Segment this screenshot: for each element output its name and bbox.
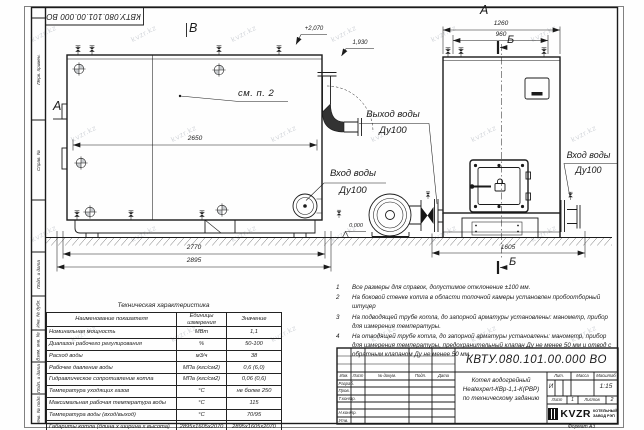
tech-header-unit: Единицы измерения xyxy=(177,313,227,327)
sheet-value: 1 xyxy=(567,398,578,403)
table-row: Температура воды (вход/выход)°С70/95 xyxy=(47,409,282,421)
tech-name: Максимальная рабочая температура воды xyxy=(47,397,177,409)
dim-1260: 1260 xyxy=(474,21,528,28)
company-logo: KVZR КОТЕЛЬНЫЙ ЗАВОД РЭП xyxy=(548,405,617,423)
tech-name: Расход воды xyxy=(47,350,177,362)
strip-label-podp-data-2: Подп. и дата xyxy=(31,362,45,394)
elevation-2070: +2,070 xyxy=(300,26,328,32)
tech-value: 38 xyxy=(227,350,282,362)
tech-table-title: Техническая характеристика xyxy=(46,302,281,312)
title-block-designation: КВТУ.080.101.00.000 ВО xyxy=(457,351,616,369)
tech-name: Температура воды (вход/выход) xyxy=(47,409,177,421)
tech-value: 115 xyxy=(227,397,282,409)
col-list: Лист xyxy=(351,374,365,378)
elevation-zero: 0.000 xyxy=(345,224,367,230)
dim-960: 960 xyxy=(474,32,528,39)
tech-value: 1,1 xyxy=(227,327,282,339)
outlet-water-label: Выход воды xyxy=(357,110,429,120)
col-podp: Подп. xyxy=(409,374,432,378)
company-name-line2: ЗАВОД РЭП xyxy=(593,414,617,419)
tech-name: Рабочее давление воды xyxy=(47,362,177,374)
list-item: 3На подводящей трубе котла, до запорной … xyxy=(336,314,617,332)
strip-label-text: Подп. и дата xyxy=(36,260,41,289)
tech-name: Гидравлическое сопротивление котла xyxy=(47,374,177,386)
company-name: КОТЕЛЬНЫЙ ЗАВОД РЭП xyxy=(593,409,617,418)
mass-label: Масса xyxy=(571,374,594,378)
row-razrab: Разраб. xyxy=(339,382,355,386)
table-row: Диапазон рабочего регулирования%50-100 xyxy=(47,338,282,350)
table-row: Номинальная мощностьМВт1,1 xyxy=(47,327,282,339)
tech-name: Диапазон рабочего регулирования xyxy=(47,338,177,350)
table-row: Температура уходящих газов°Сне более 250 xyxy=(47,386,282,398)
dim-2770: 2770 xyxy=(167,245,221,252)
tech-unit: °С xyxy=(177,397,227,409)
doc-name-line1: Котел водогрейный xyxy=(456,378,546,384)
scale-label: Масштаб xyxy=(594,374,618,378)
tech-value: 0,06 (0,6) xyxy=(227,374,282,386)
tech-value: 70/95 xyxy=(227,409,282,421)
kvzr-logo-icon xyxy=(548,408,558,420)
sheet-label: Лист xyxy=(547,398,567,402)
table-row: Расход водым3/ч38 xyxy=(47,350,282,362)
table-row: Рабочее давление водыМПа (кгс/см2)0,6 (6… xyxy=(47,362,282,374)
tech-unit: МВт xyxy=(177,327,227,339)
tech-unit: °С xyxy=(177,386,227,398)
inlet-water-dn-left: Ду100 xyxy=(318,186,388,196)
tech-value: 2895х1605х2070 xyxy=(227,421,282,430)
strip-label-text: Перв. примен. xyxy=(36,54,41,85)
inlet-water-dn-right: Ду100 xyxy=(559,166,618,175)
note-number: 4 xyxy=(336,333,352,360)
note-number: 3 xyxy=(336,314,352,332)
callout-see-note-2: см. п. 2 xyxy=(238,89,274,99)
table-row: Гидравлическое сопротивление котлаМПа (к… xyxy=(47,374,282,386)
row-nkontr: Н.контр. xyxy=(339,411,357,415)
sheets-value: 2 xyxy=(606,398,618,403)
boiler-door xyxy=(470,160,531,212)
view-label-a-left: А xyxy=(53,100,61,113)
elevation-1930: 1,930 xyxy=(346,40,374,46)
tech-unit: 2895х1605х2070 xyxy=(177,421,227,430)
section-label-b-bottom: Б xyxy=(509,257,516,268)
strip-label-text: Подп. и дата xyxy=(36,364,41,393)
col-data: Дата xyxy=(432,374,455,378)
tech-unit: м3/ч xyxy=(177,350,227,362)
inlet-water-label-right: Вход воды xyxy=(559,151,618,160)
row-tkontr: Т.контр. xyxy=(339,397,356,401)
row-prov: Пров. xyxy=(339,389,350,393)
strip-label-sprav: Справ. № xyxy=(31,120,45,200)
col-docnum: № докум. xyxy=(365,374,409,378)
note-text: На боковой стенке котла в области топочн… xyxy=(352,294,617,312)
strip-label-text: Инв. № дубл. xyxy=(36,299,41,327)
strip-label-inv-podl: Инв. № подл. xyxy=(31,394,45,424)
top-designation: КВТУ.080.101.00.000 ВО xyxy=(45,8,142,24)
tech-unit: МПа (кгс/см2) xyxy=(177,374,227,386)
tech-unit: % xyxy=(177,338,227,350)
doc-name-line3: по техническому заданию xyxy=(456,396,546,402)
tech-name: Температура уходящих газов xyxy=(47,386,177,398)
drawing-sheet: kvzr.kzkvzr.kzkvzr.kzkvzr.kzkvzr.kzkvzr.… xyxy=(0,0,644,430)
scale-value: 1:15 xyxy=(594,384,618,391)
strip-label-inv-dubl: Инв. № дубл. xyxy=(31,296,45,330)
col-izm: Изм. xyxy=(337,374,351,378)
tech-header-value: Значение xyxy=(227,313,282,327)
note-text: На подводящей трубе котла, до запорной а… xyxy=(352,314,617,332)
note-number: 2 xyxy=(336,294,352,312)
dim-2895: 2895 xyxy=(167,258,221,265)
sheets-label: Листов xyxy=(578,398,606,402)
list-item: 1Все размеры для справок, допустимое отк… xyxy=(336,284,617,293)
blower-fan xyxy=(343,194,444,238)
note-number: 1 xyxy=(336,284,352,293)
outlet-water-dn: Ду100 xyxy=(357,126,429,136)
strip-label-text: Взам. инв. № xyxy=(36,332,41,360)
tech-header-name: Наименование показателя xyxy=(47,313,177,327)
tech-name: Габариты котла (длина х ширина х высота) xyxy=(47,421,177,430)
dim-2650: 2650 xyxy=(168,136,222,143)
note-text: Все размеры для справок, допустимое откл… xyxy=(352,284,617,293)
strip-label-perv-primen: Перв. примен. xyxy=(31,18,45,120)
table-row: Максимальная рабочая температура воды°С1… xyxy=(47,397,282,409)
tech-unit: МПа (кгс/см2) xyxy=(177,362,227,374)
left-view-body xyxy=(62,55,322,238)
doc-name-line2: Heatexpert-КВр-1,1-К(РВР) xyxy=(456,387,546,393)
rear-flange xyxy=(293,194,322,218)
tech-value: не более 250 xyxy=(227,386,282,398)
tech-unit: °С xyxy=(177,409,227,421)
format-note: Формат А3 xyxy=(545,425,618,430)
strip-label-text: Инв. № подл. xyxy=(36,395,41,424)
view-label-b: В xyxy=(189,22,197,35)
list-item: 2На боковой стенке котла в области топоч… xyxy=(336,294,617,312)
kvzr-logo-text: KVZR xyxy=(560,408,591,420)
tech-value: 50-100 xyxy=(227,338,282,350)
lit-value: И xyxy=(547,384,555,390)
tech-value: 0,6 (6,0) xyxy=(227,362,282,374)
tech-characteristics: Техническая характеристика Наименование … xyxy=(46,302,281,430)
dim-1605: 1605 xyxy=(481,245,535,252)
tech-table: Наименование показателя Единицы измерени… xyxy=(46,312,282,430)
tech-name: Номинальная мощность xyxy=(47,327,177,339)
lit-label: Лит. xyxy=(547,374,571,378)
row-utv: Утв. xyxy=(339,419,349,423)
inlet-water-label-left: Вход воды xyxy=(318,169,388,179)
strip-label-podp-data-1: Подп. и дата xyxy=(31,252,45,296)
view-label-a-right: А xyxy=(480,4,488,17)
strip-label-vzam-inv: Взам. инв. № xyxy=(31,330,45,362)
table-row: Габариты котла (длина х ширина х высота)… xyxy=(47,421,282,430)
strip-label-text: Справ. № xyxy=(36,150,41,171)
